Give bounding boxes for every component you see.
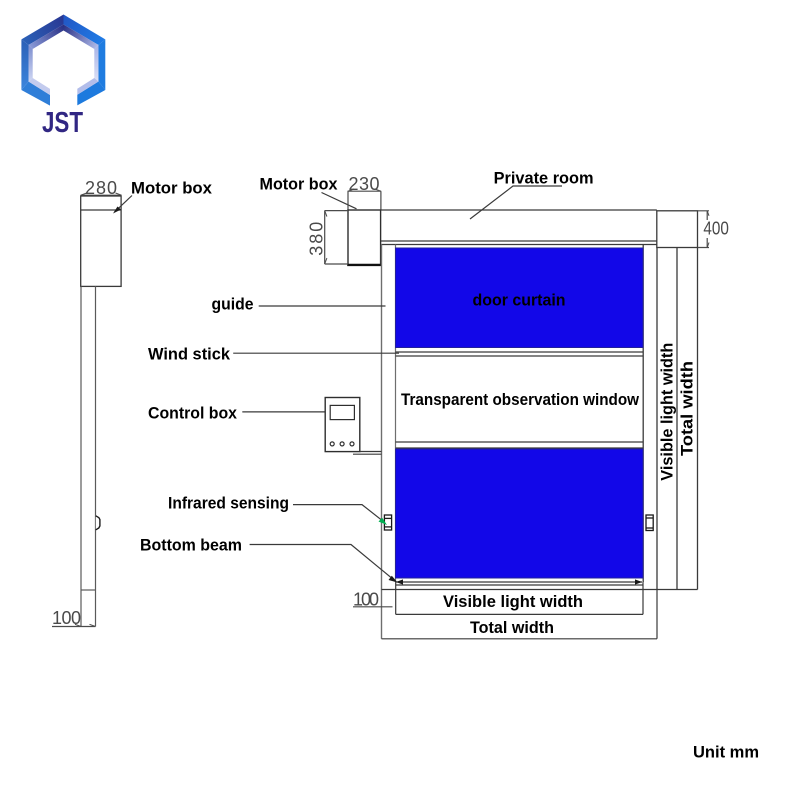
svg-text:Visible light width: Visible light width bbox=[443, 592, 583, 611]
svg-text:Motor box: Motor box bbox=[131, 179, 213, 198]
svg-text:400: 400 bbox=[703, 219, 729, 239]
svg-text:Bottom beam: Bottom beam bbox=[140, 536, 242, 555]
svg-text:Total width: Total width bbox=[470, 618, 554, 637]
svg-text:Visible light width: Visible light width bbox=[658, 343, 677, 481]
svg-text:guide: guide bbox=[212, 295, 254, 314]
svg-text:Infrared sensing: Infrared sensing bbox=[168, 493, 289, 512]
svg-text:Private room: Private room bbox=[494, 168, 594, 187]
svg-text:Total width: Total width bbox=[678, 361, 697, 456]
svg-text:Wind stick: Wind stick bbox=[148, 345, 231, 364]
svg-text:JST: JST bbox=[42, 107, 83, 139]
svg-text:380: 380 bbox=[307, 222, 327, 256]
svg-text:Transparent observation window: Transparent observation window bbox=[401, 390, 640, 409]
svg-text:door curtain: door curtain bbox=[473, 291, 566, 310]
svg-text:Unit mm: Unit mm bbox=[693, 743, 759, 762]
svg-text:280: 280 bbox=[85, 178, 117, 198]
svg-text:Control box: Control box bbox=[148, 404, 237, 423]
svg-text:Motor box: Motor box bbox=[260, 175, 339, 194]
